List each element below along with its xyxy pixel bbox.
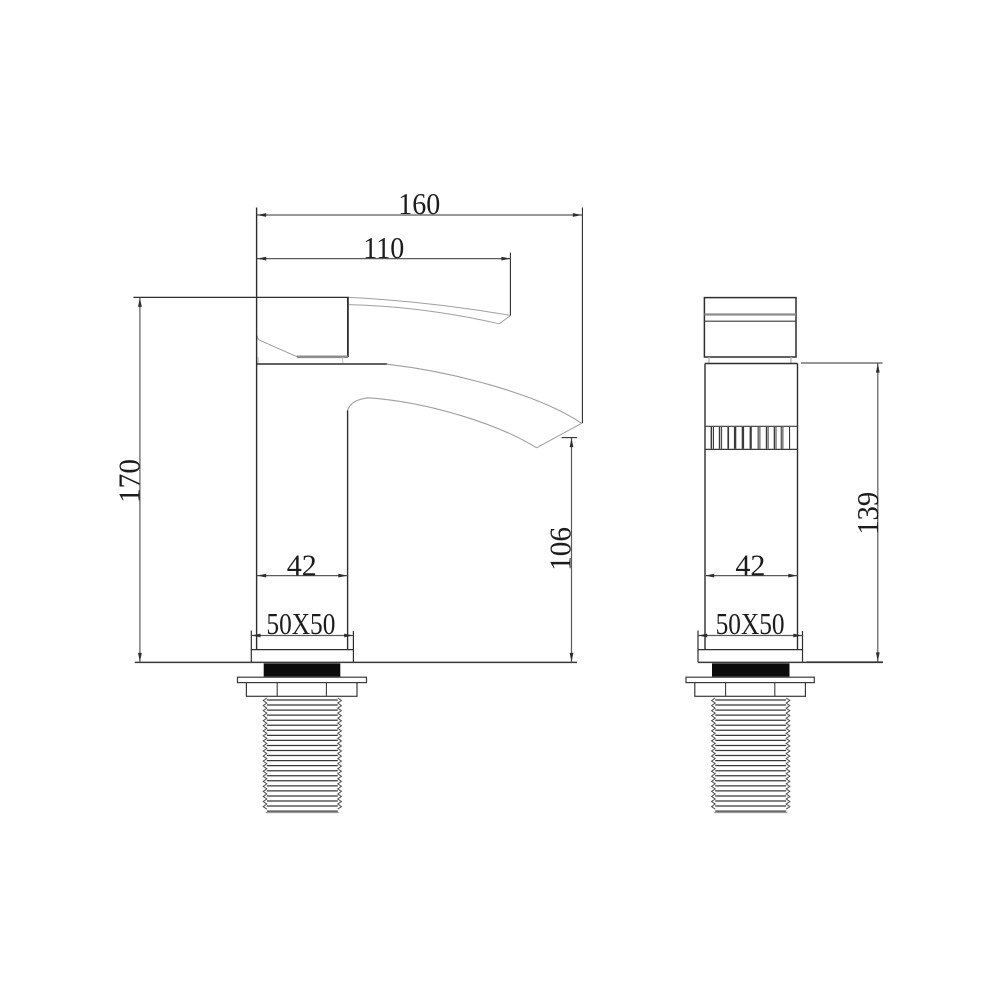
svg-text:42: 42 [287, 547, 317, 582]
svg-text:50X50: 50X50 [716, 606, 785, 641]
svg-text:106: 106 [543, 527, 578, 571]
svg-text:42: 42 [735, 547, 765, 582]
svg-text:50X50: 50X50 [266, 606, 335, 641]
svg-text:110: 110 [363, 230, 404, 265]
svg-text:160: 160 [398, 186, 440, 221]
svg-text:170: 170 [111, 459, 146, 503]
svg-text:139: 139 [850, 492, 885, 535]
